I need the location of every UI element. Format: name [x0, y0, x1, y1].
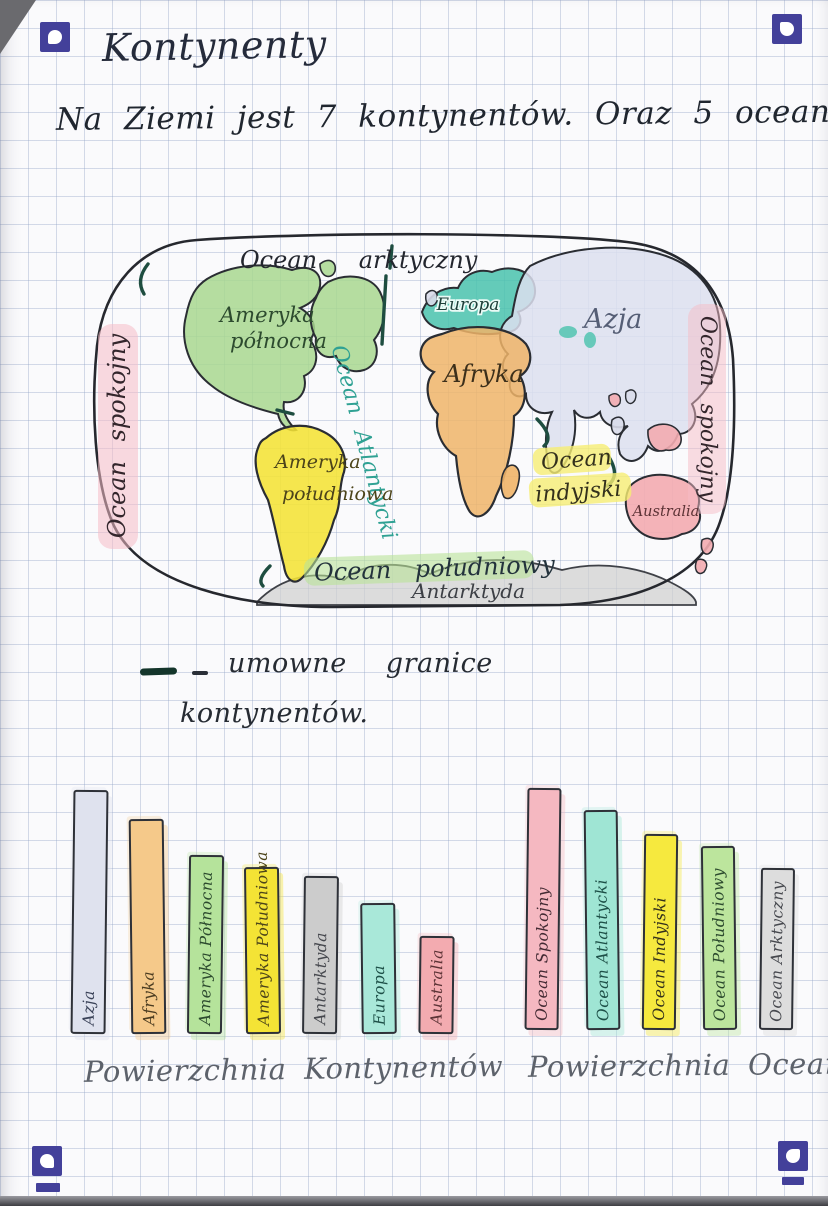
chart-oceans-areas: Ocean SpokojnyOcean AtlantyckiOcean Indy…: [526, 788, 794, 1030]
corner-marker-glyph-icon: [786, 1149, 800, 1163]
bar-ocean-indyjski: Ocean Indyjski: [642, 834, 678, 1030]
photo-corner-shadow: [0, 0, 36, 54]
island-new-zealand: [695, 538, 713, 573]
continent-asia: [500, 248, 720, 473]
island-small-pink: [609, 394, 620, 407]
corner-marker-icon: [778, 1141, 808, 1171]
label-ocean-pacific-left: Ocean spokojny: [103, 333, 131, 538]
label-asia: Azja: [581, 304, 642, 335]
legend-text-line2: kontynentów.: [180, 698, 368, 729]
bar-azja: Azja: [71, 790, 109, 1034]
inland-sea: [559, 326, 577, 338]
intro-sentence: Na Ziemi jest 7 kontynentów. Oraz 5 ocea…: [56, 94, 806, 138]
corner-marker-glyph-icon: [780, 22, 794, 36]
bar-label: Ocean Arktyczny: [767, 880, 787, 1021]
notebook-page: Kontynenty Na Ziemi jest 7 kontynentów. …: [0, 0, 828, 1206]
bar-australia: Australia: [418, 936, 454, 1034]
bar-label: Ameryka Południowa: [253, 850, 273, 1025]
bar-ameryka-po-udniowa: Ameryka Południowa: [244, 867, 281, 1035]
island-small: [626, 390, 636, 403]
chart-continents-areas: AzjaAfrykaAmeryka PółnocnaAmeryka Połudn…: [72, 786, 454, 1034]
label-south-america-1: Ameryka: [273, 451, 361, 473]
corner-marker-glyph-icon: [48, 30, 62, 44]
world-map-svg: Ocean arktyczny Ocean spokojny Ocean spo…: [82, 224, 742, 620]
legend-hyphen: [192, 671, 208, 675]
chart-oceans-caption: Powierzchnia Oceanów: [528, 1046, 828, 1084]
bar-label: Australia: [427, 949, 446, 1025]
bar-label: Azja: [79, 989, 97, 1025]
bar-ocean-atlantycki: Ocean Atlantycki: [583, 810, 620, 1030]
island-madagascar: [501, 465, 519, 498]
bar-label: Ocean Indyjski: [650, 897, 670, 1021]
label-ocean-pacific-right: Ocean spokojny: [695, 316, 720, 503]
world-map-drawing: Ocean arktyczny Ocean spokojny Ocean spo…: [82, 224, 742, 620]
corner-marker-icon: [40, 22, 70, 52]
bar-label: Ameryka Północna: [195, 871, 215, 1025]
corner-marker-bar: [782, 1177, 804, 1185]
legend-dash-symbol: [140, 667, 177, 675]
bar-ocean-arktyczny: Ocean Arktyczny: [759, 867, 795, 1030]
bar-ameryka-p-nocna: Ameryka Północna: [187, 855, 224, 1035]
bar-label: Europa: [370, 965, 389, 1025]
bar-europa: Europa: [360, 903, 397, 1035]
island-japan: [611, 417, 624, 434]
bar-label: Ocean Atlantycki: [592, 879, 612, 1021]
label-north-america-2: północna: [230, 329, 327, 353]
corner-marker-icon: [32, 1146, 62, 1176]
corner-marker-icon: [772, 14, 802, 44]
label-ocean-arctic: Ocean arktyczny: [240, 246, 478, 274]
label-antarctica: Antarktyda: [410, 579, 525, 603]
bar-antarktyda: Antarktyda: [302, 876, 339, 1034]
corner-marker-glyph-icon: [40, 1154, 54, 1168]
page-title: Kontynenty: [102, 22, 327, 70]
label-north-america-1: Ameryka: [218, 303, 315, 327]
bar-label: Antarktyda: [311, 932, 330, 1025]
label-africa: Afryka: [442, 360, 524, 388]
island-papua: [648, 424, 681, 451]
corner-marker-bar: [36, 1183, 60, 1192]
label-south-america-2: południowa: [282, 483, 394, 505]
label-ocean-indian-2: indyjski: [535, 477, 623, 508]
chart-continents-caption: Powierzchnia Kontynentów: [84, 1049, 504, 1089]
bar-label: Ocean Południowy: [709, 868, 729, 1021]
bar-label: Afryka: [139, 970, 158, 1025]
bar-label: Ocean Spokojny: [533, 887, 553, 1021]
bar-afryka: Afryka: [129, 819, 167, 1035]
photo-bottom-edge: [0, 1196, 828, 1206]
label-europe: Europa: [436, 295, 500, 315]
island-britain: [426, 290, 438, 305]
bar-ocean-spokojny: Ocean Spokojny: [525, 788, 562, 1030]
bar-ocean-po-udniowy: Ocean Południowy: [700, 846, 736, 1030]
label-australia: Australia: [631, 504, 700, 520]
label-ocean-indian-1: Ocean: [540, 445, 612, 475]
legend-text-line1: umowne granice: [228, 648, 493, 679]
